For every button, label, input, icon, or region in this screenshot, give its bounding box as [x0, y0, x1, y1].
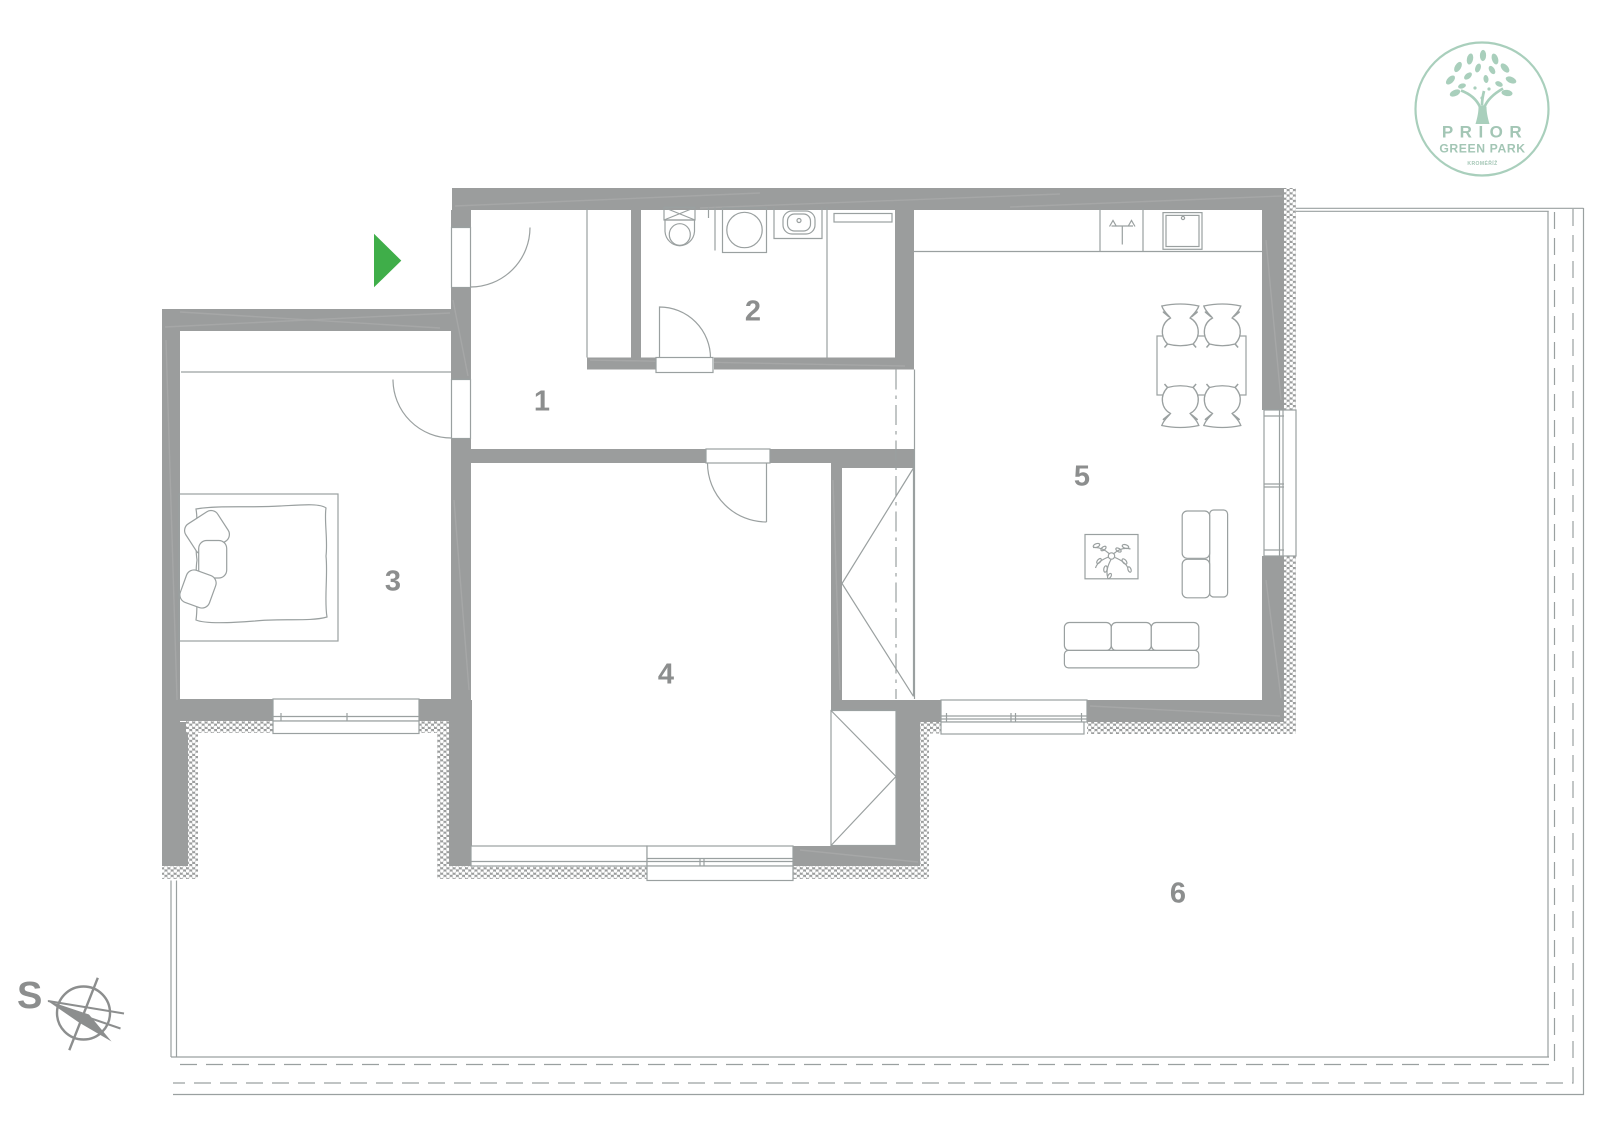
svg-text:2: 2 [745, 296, 761, 328]
svg-text:GREEN PARK: GREEN PARK [1439, 142, 1525, 156]
svg-text:4: 4 [658, 659, 674, 691]
svg-text:5: 5 [1074, 461, 1090, 493]
svg-text:1: 1 [534, 386, 550, 418]
svg-text:6: 6 [1170, 878, 1186, 910]
svg-text:S: S [17, 975, 42, 1017]
svg-text:KROMĖŘÍŽ: KROMĖŘÍŽ [1467, 159, 1497, 167]
svg-text:PRIOR: PRIOR [1442, 123, 1528, 142]
svg-text:3: 3 [385, 566, 401, 598]
